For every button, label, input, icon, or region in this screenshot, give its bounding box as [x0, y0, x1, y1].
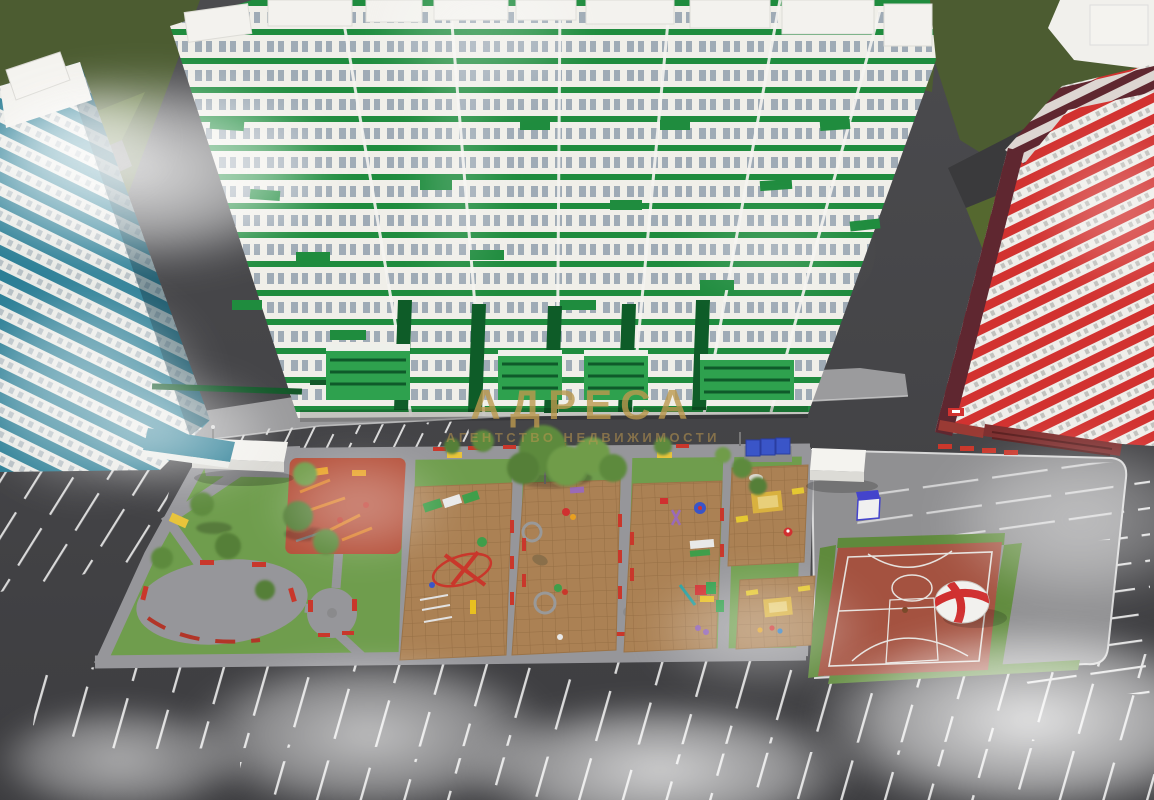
- sandbox-upper: [728, 465, 808, 566]
- playground-2: [512, 480, 620, 655]
- blue-cube: [856, 490, 880, 520]
- playground-3: [624, 481, 724, 652]
- player-figure: [902, 607, 908, 613]
- sandbox-lower: [736, 576, 815, 649]
- render-canvas: [0, 0, 1154, 800]
- entrance-3: [584, 350, 648, 400]
- paved-zone-parking-lines: [852, 462, 1115, 545]
- residential-complex-render: АДРЕСА АГЕНТСТВО НЕДВИЖИМОСТИ: [0, 0, 1154, 800]
- entrance-4: [700, 354, 794, 400]
- round-plaza-1: [307, 588, 357, 638]
- playground-1: [400, 483, 512, 660]
- entrance-2: [498, 350, 562, 400]
- parking-bottom-row2: [240, 746, 1154, 800]
- waste-containers: [740, 432, 792, 462]
- central-building: [152, 0, 936, 422]
- entrance-1: [326, 344, 410, 400]
- right-tower-roof-box: [1090, 5, 1148, 45]
